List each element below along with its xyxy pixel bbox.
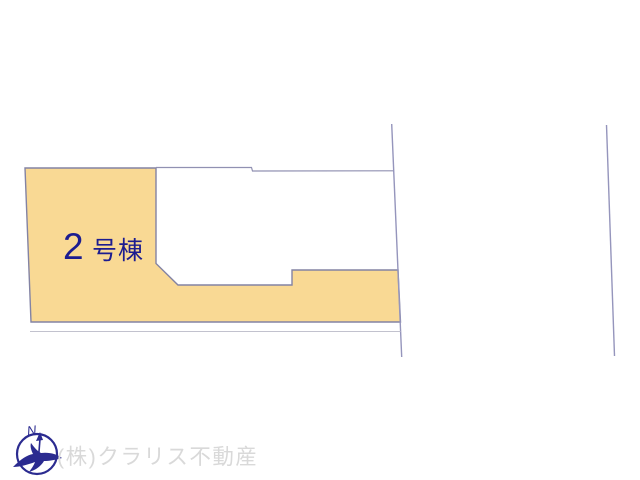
parcel-label-suffix: 号棟 xyxy=(92,237,144,265)
company-name: (株)クラリス不動産 xyxy=(57,445,258,469)
logo-bird-silhouette xyxy=(13,443,62,472)
parcel-label-number: 2 xyxy=(63,226,85,267)
boundary-line-right xyxy=(607,125,615,356)
plot-plan-svg: 2 号棟 N (株)クラリス不動産 xyxy=(0,0,640,480)
neighbor-parcel-outline xyxy=(156,168,394,172)
north-compass-bird-logo: N xyxy=(13,422,62,474)
logo-north-letter: N xyxy=(26,422,38,438)
plot-plan-canvas: 2 号棟 N (株)クラリス不動産 xyxy=(0,0,640,480)
